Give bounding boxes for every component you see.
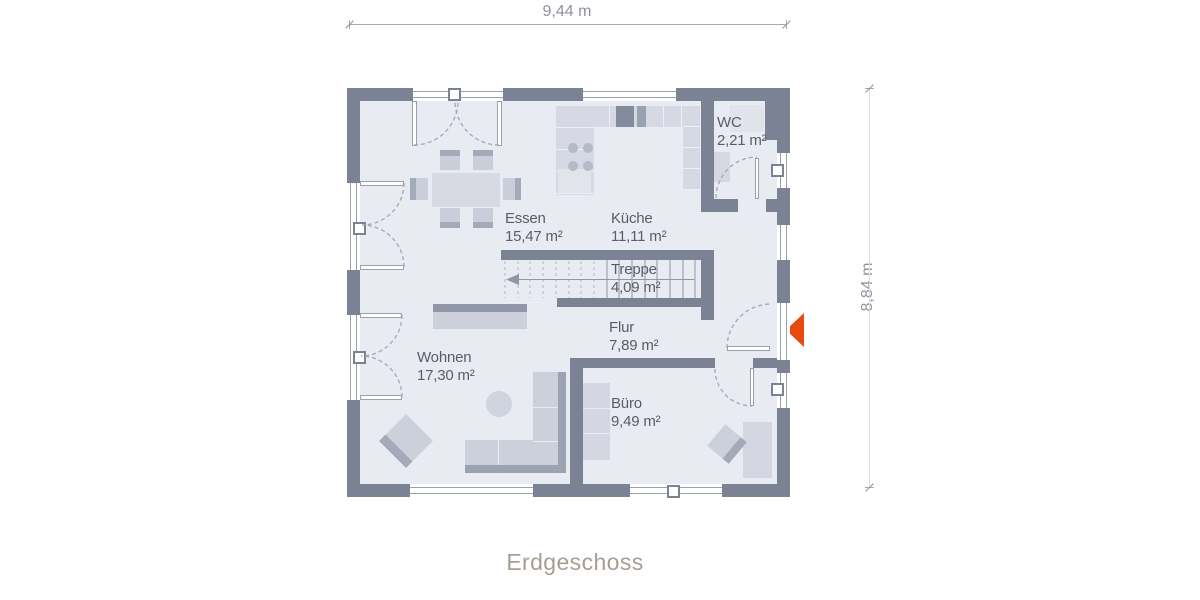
room-name: Wohnen xyxy=(417,349,475,367)
room-label-wohnen: Wohnen 17,30 m² xyxy=(417,349,475,385)
room-name: WC xyxy=(717,114,766,132)
room-label-flur: Flur 7,89 m² xyxy=(609,319,658,355)
room-label-treppe: Treppe 4,09 m² xyxy=(611,261,660,297)
dimension-width-line xyxy=(349,24,787,25)
room-area: 9,49 m² xyxy=(611,413,660,431)
room-name: Büro xyxy=(611,395,660,413)
floor-title: Erdgeschoss xyxy=(450,549,700,576)
door-swing-arc xyxy=(727,304,771,348)
dimension-height-label: 8,84 m xyxy=(859,237,877,337)
room-area: 17,30 m² xyxy=(417,367,475,385)
dimension-height-line xyxy=(869,88,870,488)
door-swing-arc xyxy=(455,101,499,145)
room-label-buero: Büro 9,49 m² xyxy=(611,395,660,431)
room-name: Küche xyxy=(611,210,666,228)
door-swing-arc xyxy=(715,369,752,406)
door-swing-arc xyxy=(716,157,757,198)
room-name: Treppe xyxy=(611,261,660,279)
room-area: 2,21 m² xyxy=(717,132,766,150)
stair-direction-arrow xyxy=(506,274,519,285)
floorplan-page: 9,44 m 8,84 m xyxy=(0,0,1200,600)
door-swing-arc xyxy=(414,101,458,145)
door-swing-arc xyxy=(361,356,402,397)
room-area: 11,11 m² xyxy=(611,228,666,246)
room-area: 4,09 m² xyxy=(611,279,660,297)
door-swing-arc xyxy=(362,225,404,267)
dimension-width-label: 9,44 m xyxy=(517,3,617,21)
room-label-kueche: Küche 11,11 m² xyxy=(611,210,666,246)
room-label-wc: WC 2,21 m² xyxy=(717,114,766,150)
room-label-essen: Essen 15,47 m² xyxy=(505,210,563,246)
room-name: Flur xyxy=(609,319,658,337)
room-name: Essen xyxy=(505,210,563,228)
door-swing-arc xyxy=(361,315,402,356)
room-area: 7,89 m² xyxy=(609,337,658,355)
room-area: 15,47 m² xyxy=(505,228,563,246)
door-swing-arc xyxy=(362,183,404,225)
floorplan: Essen 15,47 m² Küche 11,11 m² WC 2,21 m²… xyxy=(347,88,790,497)
